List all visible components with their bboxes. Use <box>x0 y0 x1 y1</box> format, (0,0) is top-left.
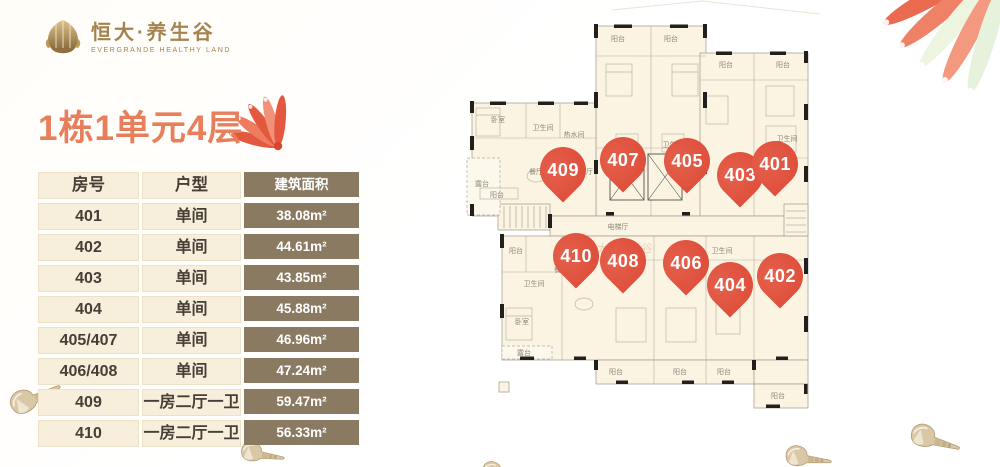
cell-unit-type: 单间 <box>142 327 241 354</box>
cell-room-number: 403 <box>38 265 139 292</box>
cell-room-number: 404 <box>38 296 139 323</box>
table-row: 403单间43.85m² <box>38 265 359 292</box>
cell-built-area: 43.85m² <box>244 265 359 290</box>
unit-pin-409[interactable]: 409 <box>530 137 595 202</box>
table-row: 402单间44.61m² <box>38 234 359 261</box>
header-unit-type: 户型 <box>142 172 241 199</box>
table-row: 406/408单间47.24m² <box>38 358 359 385</box>
unit-pin-label: 407 <box>607 150 639 171</box>
unit-pin-label: 401 <box>759 154 791 175</box>
room-label: 阳台 <box>509 246 523 256</box>
cell-room-number: 401 <box>38 203 139 230</box>
table-row: 409一房二厅一卫59.47m² <box>38 389 359 416</box>
unit-pin-label: 404 <box>714 275 746 296</box>
unit-pin-402[interactable]: 402 <box>747 243 812 308</box>
unit-pin-410[interactable]: 410 <box>543 223 608 288</box>
cell-room-number: 405/407 <box>38 327 139 354</box>
cell-unit-type: 单间 <box>142 265 241 292</box>
room-label: 露台 <box>475 179 489 189</box>
cell-unit-type: 单间 <box>142 296 241 323</box>
cell-unit-type: 单间 <box>142 234 241 261</box>
unit-area-table: 房号 户型 建筑面积 401单间38.08m²402单间44.61m²403单间… <box>38 172 359 451</box>
floor-plan-overlay: 恒大·养生谷 阳台阳台阳台阳台卧室卫生间热水间餐厅餐厅露台阳台卫生间卫生间卫生间… <box>466 8 814 420</box>
unit-pin-label: 410 <box>560 246 592 267</box>
unit-pin-408[interactable]: 408 <box>590 228 655 293</box>
cell-room-number: 409 <box>38 389 139 416</box>
room-label: 阳台 <box>776 60 790 70</box>
cell-unit-type: 一房二厅一卫 <box>142 420 241 447</box>
room-label: 热水间 <box>564 130 585 140</box>
brand-name: 恒大·养生谷 <box>91 22 231 44</box>
cell-unit-type: 单间 <box>142 358 241 385</box>
unit-pin-label: 406 <box>670 253 702 274</box>
unit-pin-label: 409 <box>547 160 579 181</box>
cell-built-area: 46.96m² <box>244 327 359 352</box>
room-label: 阳台 <box>717 367 731 377</box>
table-body: 401单间38.08m²402单间44.61m²403单间43.85m²404单… <box>38 203 359 447</box>
cell-built-area: 45.88m² <box>244 296 359 321</box>
cell-unit-type: 单间 <box>142 203 241 230</box>
cell-built-area: 44.61m² <box>244 234 359 259</box>
table-row: 405/407单间46.96m² <box>38 327 359 354</box>
unit-pin-label: 405 <box>671 151 703 172</box>
table-row: 401单间38.08m² <box>38 203 359 230</box>
cell-room-number: 406/408 <box>38 358 139 385</box>
cell-built-area: 38.08m² <box>244 203 359 228</box>
room-label: 卫生间 <box>524 279 545 289</box>
room-label: 露台 <box>517 348 531 358</box>
room-label: 阳台 <box>609 367 623 377</box>
unit-pin-label: 402 <box>764 266 796 287</box>
room-label: 卧室 <box>515 317 529 327</box>
room-label: 阳台 <box>771 391 785 401</box>
room-label: 阳台 <box>673 367 687 377</box>
cell-room-number: 410 <box>38 420 139 447</box>
room-label: 卧室 <box>491 115 505 125</box>
cell-built-area: 47.24m² <box>244 358 359 383</box>
room-label: 卫生间 <box>533 123 554 133</box>
unit-pin-405[interactable]: 405 <box>654 128 719 193</box>
cell-built-area: 59.47m² <box>244 389 359 414</box>
unit-pin-label: 408 <box>607 251 639 272</box>
room-label: 阳台 <box>664 34 678 44</box>
evergrande-emblem-icon <box>44 18 82 58</box>
room-label: 卫生间 <box>712 246 733 256</box>
cell-unit-type: 一房二厅一卫 <box>142 389 241 416</box>
header-built-area: 建筑面积 <box>244 172 359 197</box>
page-title: 1栋1单元4层 <box>38 100 243 151</box>
floor-plan: 恒大·养生谷 阳台阳台阳台阳台卧室卫生间热水间餐厅餐厅露台阳台卫生间卫生间卫生间… <box>466 8 814 420</box>
brand-subtitle: EVERGRANDE HEALTHY LAND <box>91 47 231 54</box>
room-label: 阳台 <box>611 34 625 44</box>
table-header-row: 房号 户型 建筑面积 <box>38 172 359 199</box>
fan-shell-decoration <box>865 0 1000 96</box>
brand-logo: 恒大·养生谷 EVERGRANDE HEALTHY LAND <box>44 18 231 58</box>
unit-pin-407[interactable]: 407 <box>590 127 655 192</box>
header-room-number: 房号 <box>38 172 139 199</box>
room-label: 阳台 <box>719 60 733 70</box>
room-label: 阳台 <box>490 190 504 200</box>
cell-room-number: 402 <box>38 234 139 261</box>
cell-built-area: 56.33m² <box>244 420 359 445</box>
table-row: 410一房二厅一卫56.33m² <box>38 420 359 447</box>
room-label: 电梯厅 <box>608 222 629 232</box>
table-row: 404单间45.88m² <box>38 296 359 323</box>
